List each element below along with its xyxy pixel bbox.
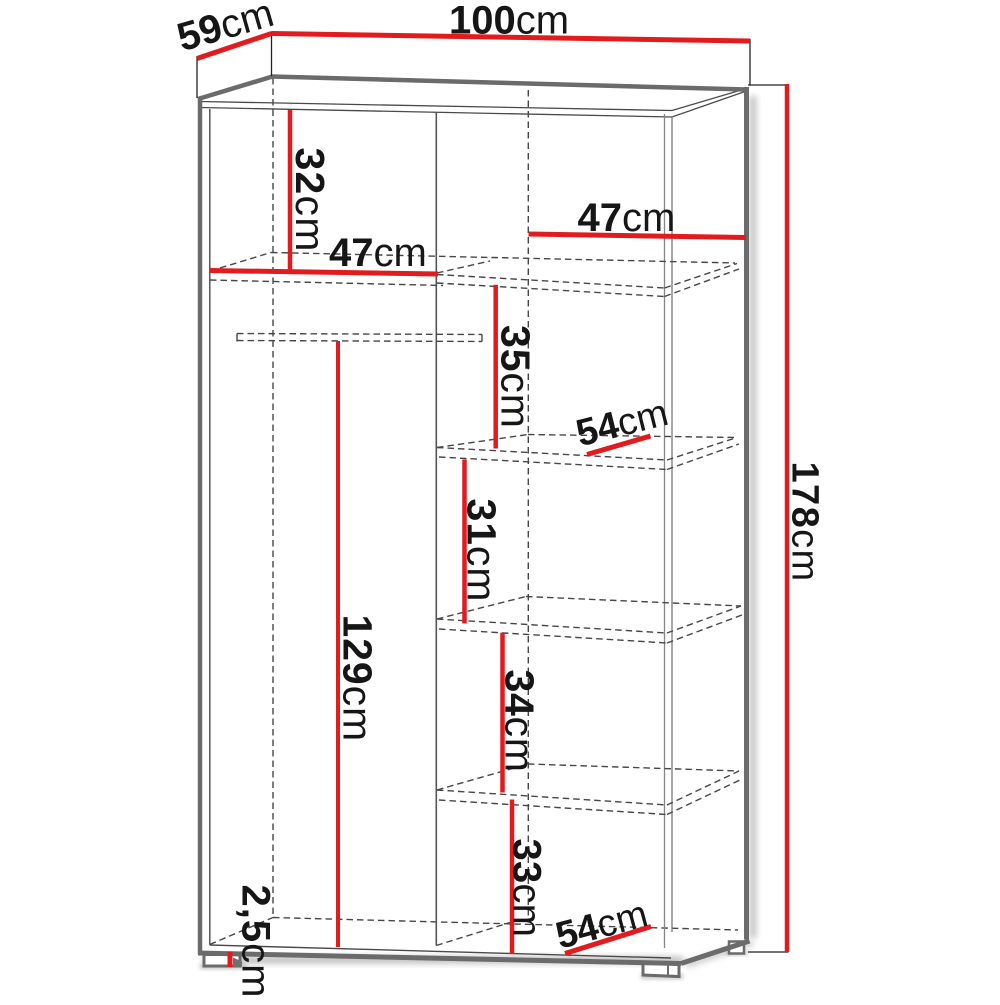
svg-text:31cm: 31cm	[459, 499, 505, 603]
svg-text:34cm: 34cm	[497, 670, 543, 773]
svg-text:2,5cm: 2,5cm	[234, 885, 278, 999]
svg-text:54cm: 54cm	[551, 893, 652, 958]
svg-text:32cm: 32cm	[287, 148, 333, 253]
svg-text:33cm: 33cm	[505, 839, 549, 938]
svg-text:47cm: 47cm	[329, 231, 427, 275]
svg-text:129cm: 129cm	[335, 615, 381, 743]
svg-text:35cm: 35cm	[493, 325, 539, 429]
svg-text:100cm: 100cm	[449, 0, 569, 43]
svg-text:47cm: 47cm	[578, 196, 676, 240]
svg-text:178cm: 178cm	[784, 462, 826, 583]
